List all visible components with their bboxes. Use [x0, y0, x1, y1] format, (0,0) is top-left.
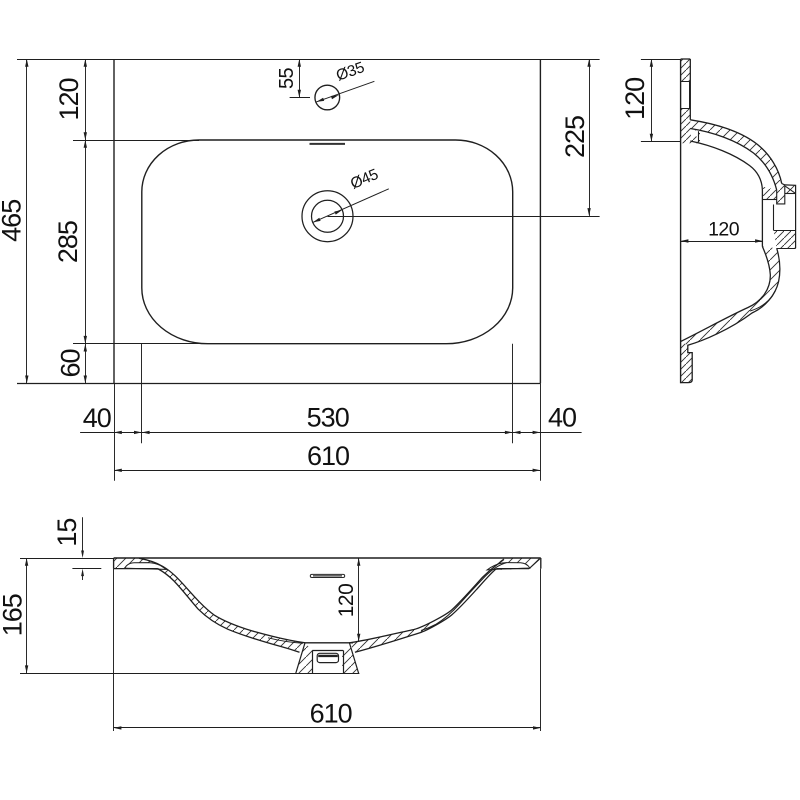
svg-text:610: 610 — [310, 699, 352, 729]
svg-text:40: 40 — [548, 403, 576, 433]
svg-text:40: 40 — [83, 403, 111, 433]
svg-text:465: 465 — [0, 200, 27, 242]
svg-text:120: 120 — [54, 78, 84, 120]
svg-text:120: 120 — [620, 78, 650, 120]
svg-text:610: 610 — [307, 441, 349, 471]
svg-text:225: 225 — [560, 116, 590, 158]
svg-text:165: 165 — [0, 594, 27, 636]
svg-text:60: 60 — [56, 349, 86, 377]
svg-text:120: 120 — [335, 584, 358, 618]
svg-text:530: 530 — [307, 403, 349, 433]
svg-text:285: 285 — [53, 221, 83, 263]
svg-text:55: 55 — [276, 68, 298, 90]
svg-text:120: 120 — [708, 218, 740, 240]
svg-text:15: 15 — [52, 519, 82, 547]
